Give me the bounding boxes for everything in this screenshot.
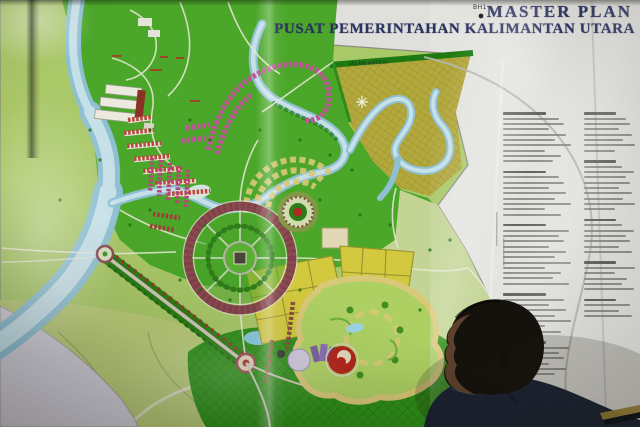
building: [138, 18, 152, 26]
boundary-text-mark: [496, 212, 497, 246]
legend-line: [503, 112, 546, 115]
legend-line: [584, 240, 630, 242]
photo-masterplan-poster: MASTER PLAN PUSAT PEMERINTAHAN KALIMANTA…: [0, 0, 640, 427]
legend-line: [503, 171, 546, 174]
legend-line: [503, 123, 564, 125]
legend-line: [584, 224, 622, 226]
legend-line: [503, 331, 561, 333]
legend-line: [503, 214, 561, 216]
legend-line: [584, 246, 619, 248]
legend-line: [503, 118, 559, 120]
legend-line: [503, 262, 571, 264]
legend-line: [503, 235, 559, 237]
legend-line: [503, 320, 571, 322]
legend-line: [584, 198, 623, 200]
legend-line: [503, 272, 561, 274]
poster-title-line1: MASTER PLAN: [487, 2, 632, 22]
legend-line: [503, 363, 549, 365]
legend-line: [503, 309, 566, 311]
legend-line: [584, 208, 615, 210]
legend-line: [503, 198, 555, 200]
bh1-marker-dot: [479, 14, 484, 19]
legend-line: [584, 187, 619, 189]
legend-column-2: [584, 112, 638, 325]
legend-line: [503, 390, 545, 392]
legend-line: [584, 261, 616, 264]
central-plaza: [234, 252, 246, 264]
legend-line: [584, 128, 619, 130]
legend-line: [503, 384, 546, 387]
legend-line: [503, 203, 571, 205]
legend-line: [503, 182, 564, 184]
legend-line: [503, 283, 569, 285]
legend-line: [503, 139, 555, 141]
legend-line: [503, 144, 571, 146]
legend-line: [503, 325, 545, 327]
legend-line: [584, 235, 626, 237]
legend-line: [584, 118, 626, 120]
round-plaza: [280, 194, 316, 230]
legend-line: [503, 134, 566, 136]
legend-line: [584, 299, 616, 302]
compound: [322, 228, 348, 248]
legend-line: [503, 352, 559, 354]
poster-title-line2: PUSAT PEMERINTAHAN KALIMANTAN UTARA: [274, 21, 635, 38]
legend-line: [503, 267, 545, 269]
legend-line: [584, 112, 616, 115]
legend-line: [503, 347, 569, 349]
legend-line: [503, 246, 549, 248]
legend-line: [584, 267, 635, 269]
legend-line: [503, 293, 546, 296]
legend-line: [584, 310, 619, 312]
legend-line: [503, 400, 553, 402]
legend-line: [503, 315, 555, 317]
golf-park: [295, 278, 441, 401]
legend-line: [584, 272, 615, 274]
legend-line: [584, 139, 623, 141]
legend-line: [503, 224, 546, 227]
legend-line: [584, 304, 630, 306]
legend-line: [503, 230, 569, 232]
legend-line: [503, 208, 545, 210]
legend-line: [503, 150, 545, 152]
legend-line: [584, 176, 626, 178]
legend-line: [584, 278, 627, 280]
legend-line: [503, 341, 546, 344]
legend-line: [584, 315, 632, 317]
legend-line: [503, 277, 553, 279]
legend-line: [503, 256, 555, 258]
legend-line: [503, 395, 561, 397]
legend-line: [584, 203, 635, 205]
bh1-marker-label: BH1: [473, 4, 487, 11]
legend-line: [584, 150, 615, 152]
legend-line: [503, 368, 566, 370]
legend-line: [503, 192, 566, 194]
legend-line: [503, 240, 564, 242]
legend-line: [503, 160, 553, 162]
legend-line: [503, 187, 549, 189]
legend-line: [584, 219, 616, 222]
legend-line: [584, 192, 632, 194]
legend-line: [584, 182, 630, 184]
legend-line: [584, 134, 632, 136]
legend-line: [584, 144, 635, 146]
legend-line: [584, 171, 634, 173]
legend-line: [584, 123, 630, 125]
dome-building: [288, 349, 310, 371]
legend-line: [584, 251, 632, 253]
legend-line: [503, 357, 564, 359]
legend-line: [584, 230, 634, 232]
legend-line: [503, 155, 561, 157]
legend-line: [584, 283, 622, 285]
legend-line: [503, 128, 549, 130]
legend-line: [584, 288, 634, 290]
legend-line: [503, 304, 549, 306]
legend-column-1: [503, 112, 575, 410]
legend-line: [503, 251, 566, 253]
legend-line: [503, 299, 564, 301]
legend-line: [584, 160, 616, 163]
legend-line: [584, 166, 622, 168]
legend-line: [503, 176, 559, 178]
building: [148, 30, 160, 37]
legend-line: [503, 373, 555, 375]
